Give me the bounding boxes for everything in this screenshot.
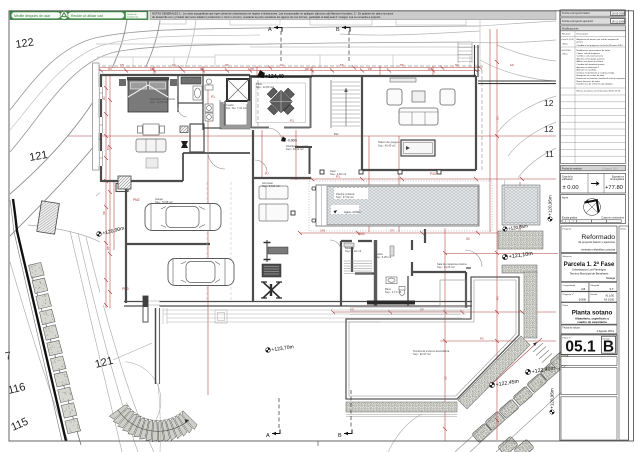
svg-text:Altillos: mas barra en el bano: Altillos: mas barra en el bano [577, 60, 604, 63]
svg-text:Letra G (3. N): Letra G (3. N) [562, 38, 575, 41]
svg-text:19-05-2006: 19-05-2006 [612, 11, 626, 15]
svg-text:Cambios del dormitorio interio: Cambios del dormitorio interior [577, 63, 605, 66]
svg-text:Armarios entre garaje y porche: Armarios entre garaje y porche [577, 57, 606, 60]
svg-text:Armarios en vestibulo: Armarios en vestibulo [577, 69, 598, 72]
svg-text:cuadro de carpinteria: cuadro de carpinteria [577, 320, 607, 324]
svg-text:B12: B12 [334, 132, 339, 136]
svg-text:Nuevas escaleras con fecha mar: Nuevas escaleras con fecha marzo 09-07-1… [577, 90, 621, 93]
svg-text:PM3: PM3 [358, 232, 365, 236]
svg-text:Urbanizacion Los Flamingos: Urbanizacion Los Flamingos [572, 267, 607, 271]
svg-text:1495: 1495 [320, 230, 326, 232]
svg-text:PM2: PM2 [133, 198, 140, 202]
svg-text:Fecha el proyecto ejecucion: Fecha el proyecto ejecucion [562, 20, 594, 23]
svg-text:+120,95m: +120,95m [550, 388, 555, 409]
svg-text:Ampliacion de terraza con sala: Ampliacion de terraza con sala de maquin… [577, 38, 620, 41]
svg-text:12: 12 [544, 98, 554, 108]
svg-text:A1 1/50: A1 1/50 [605, 294, 614, 297]
svg-text:Escala grafica: Escala grafica [562, 216, 578, 219]
svg-text:Cambios a los proyectos con fe: Cambios a los proyectos con fecha 09 mar… [577, 44, 624, 47]
svg-text:Fecha el proyecto basico: Fecha el proyecto basico [562, 12, 590, 15]
svg-text:Escala:: Escala: [591, 294, 599, 296]
svg-text:05.1: 05.1 [565, 339, 596, 356]
svg-text:Notas: Notas [621, 228, 628, 231]
svg-text:16 agosto 2010: 16 agosto 2010 [602, 167, 619, 170]
svg-text:Proyecto nº: Proyecto nº [563, 293, 574, 296]
svg-text:de desarrollo con y privado de: de desarrollo con y privado del curso ad… [152, 15, 381, 19]
svg-text:Proyecto: Proyecto [563, 228, 572, 231]
svg-text:Parcela 1. 2ª Fase: Parcela 1. 2ª Fase [564, 261, 615, 268]
svg-text:Sup.: 40,45 m2: Sup.: 40,45 m2 [378, 144, 396, 148]
svg-text:Norte: Norte [562, 196, 569, 199]
svg-text:de proyecto basico y ejecucion: de proyecto basico y ejecucion [578, 240, 615, 244]
svg-text:Sup.: 79,98 m2: Sup.: 79,98 m2 [155, 200, 173, 204]
svg-text:Armarios en dormitorio 1: Armarios en dormitorio 1 [577, 66, 600, 69]
svg-text:Sup.: 14,20 m2: Sup.: 14,20 m2 [437, 265, 455, 269]
svg-text:piscina: piscina [577, 42, 584, 44]
svg-text:Sup.: 37,62 m2: Sup.: 37,62 m2 [336, 195, 354, 199]
svg-text:P7: P7 [265, 172, 269, 176]
svg-text:(Rev): (Rev) [563, 54, 568, 56]
svg-text:A: A [268, 27, 272, 33]
svg-text:Sup.: 12,50 m2: Sup.: 12,50 m2 [150, 100, 168, 104]
svg-text:+77.80: +77.80 [605, 185, 623, 191]
svg-text:Mamparas en cuartos de bano: Mamparas en cuartos de bano [577, 74, 606, 77]
svg-text:Sup.: 4,71 m2: Sup.: 4,71 m2 [385, 290, 402, 294]
svg-text:Revision: Revision [562, 34, 571, 36]
svg-text:Descripcion: Descripcion [577, 33, 589, 36]
svg-text:Modificacion: aparcamiento de: Modificacion: aparcamiento de arriba [577, 49, 611, 52]
svg-text:Sup.: 2,60 m2: Sup.: 2,60 m2 [330, 172, 347, 176]
svg-text:Fecha de revision: Fecha de revision [562, 167, 582, 170]
svg-text:Dibujado: Dibujado [591, 285, 600, 287]
svg-text:residuos spc: residuos spc [127, 16, 138, 18]
svg-text:Inst. Tec. 7,10 m2: Inst. Tec. 7,10 m2 [226, 106, 247, 110]
svg-text:+120,95m: +120,95m [548, 195, 553, 216]
svg-text:Reformado: Reformado [581, 234, 615, 241]
svg-text:Detalles mas de chimenea que a: Detalles mas de chimenea que apliquen [577, 83, 613, 86]
svg-text:Sup.: 10,12 m2: Sup.: 10,12 m2 [286, 147, 304, 151]
svg-text:Fecha de edicion: Fecha de edicion [563, 327, 581, 329]
svg-text:Recicle al utilizar cad: Recicle al utilizar cad [71, 14, 103, 18]
svg-text:Termino Municipal de Benahavis: Termino Municipal de Benahavis [570, 272, 609, 276]
svg-text:+124,40: +124,40 [265, 74, 284, 80]
svg-text:12: 12 [544, 124, 554, 134]
svg-text:± 0.00: ± 0.00 [563, 185, 579, 191]
svg-text:Sup.: 92,97 m2: Sup.: 92,97 m2 [413, 352, 431, 356]
svg-text:Salon de juegos: Salon de juegos [378, 140, 400, 144]
svg-text:122: 122 [15, 37, 35, 51]
svg-text:A.B.: A.B. [581, 287, 586, 291]
svg-text:16-11-2006: 16-11-2006 [612, 19, 626, 23]
svg-text:Sup.: 8,16 m2: Sup.: 8,16 m2 [345, 249, 362, 253]
svg-text:(Rev): (Rev) [563, 44, 568, 46]
svg-text:Banos interiores de arriba: Banos interiores de arriba [577, 80, 601, 83]
svg-text:A: A [266, 433, 270, 439]
svg-text:la topografica: la topografica [610, 178, 625, 181]
svg-text:Modificaciones: Modificaciones [562, 28, 579, 31]
svg-text:S.T.: S.T. [610, 287, 615, 291]
svg-text:Comprobado: Comprobado [563, 284, 576, 287]
svg-text:Situacion: Situacion [563, 255, 573, 258]
svg-text:Cambio a cota casi la piscina: Cambio a cota casi la piscina [577, 55, 604, 58]
svg-text:5/3/06: 5/3/06 [579, 297, 587, 301]
svg-text:Cota de la: Cota de la [562, 176, 573, 179]
svg-text:Sup.: 12,80 m2: Sup.: 12,80 m2 [256, 85, 274, 89]
svg-text:B: B [336, 27, 340, 33]
svg-text:Agua +0,90m: Agua +0,90m [344, 210, 361, 214]
svg-text:Malaga: Malaga [606, 276, 615, 280]
svg-text:-0,00m: -0,00m [287, 139, 297, 143]
svg-text:A3 1/100: A3 1/100 [604, 298, 615, 301]
svg-text:Cotas en centimetros: Cotas en centimetros [601, 216, 624, 219]
svg-text:B: B [603, 339, 614, 356]
svg-text:Medite despues de usar: Medite despues de usar [14, 14, 51, 18]
svg-text:1 Agosto 2011: 1 Agosto 2011 [596, 329, 614, 333]
svg-text:11: 11 [545, 149, 554, 159]
svg-text:Extraccion en chimenea, bomba: Extraccion en chimenea, bomba de sala de… [577, 77, 626, 80]
svg-text:vivienda unifamiliar y piscina: vivienda unifamiliar y piscina [581, 247, 616, 251]
svg-text:Ventana en dormitorios y cuadr: Ventana en dormitorios y cuadros privado [577, 71, 616, 74]
svg-text:Plano: Plano [563, 305, 569, 307]
svg-text:NOTAS GENERALES 1.- La cot: NOTAS GENERALES 1.- La cotas topografica… [152, 11, 394, 15]
svg-text:Climas: solo de maquinas: Climas: solo de maquinas [577, 53, 600, 55]
svg-text:6-07-2010: 6-07-2010 [562, 50, 572, 52]
svg-text:Sup.: 6,25 m2: Sup.: 6,25 m2 [375, 255, 392, 259]
svg-text:00: 00 [466, 237, 470, 241]
svg-text:Sup.: 34,01 m2: Sup.: 34,01 m2 [262, 184, 280, 188]
svg-text:P43: P43 [430, 172, 436, 176]
svg-text:P1: P1 [211, 95, 215, 99]
svg-text:B: B [338, 433, 342, 439]
svg-text:edificacion: edificacion [562, 179, 574, 181]
